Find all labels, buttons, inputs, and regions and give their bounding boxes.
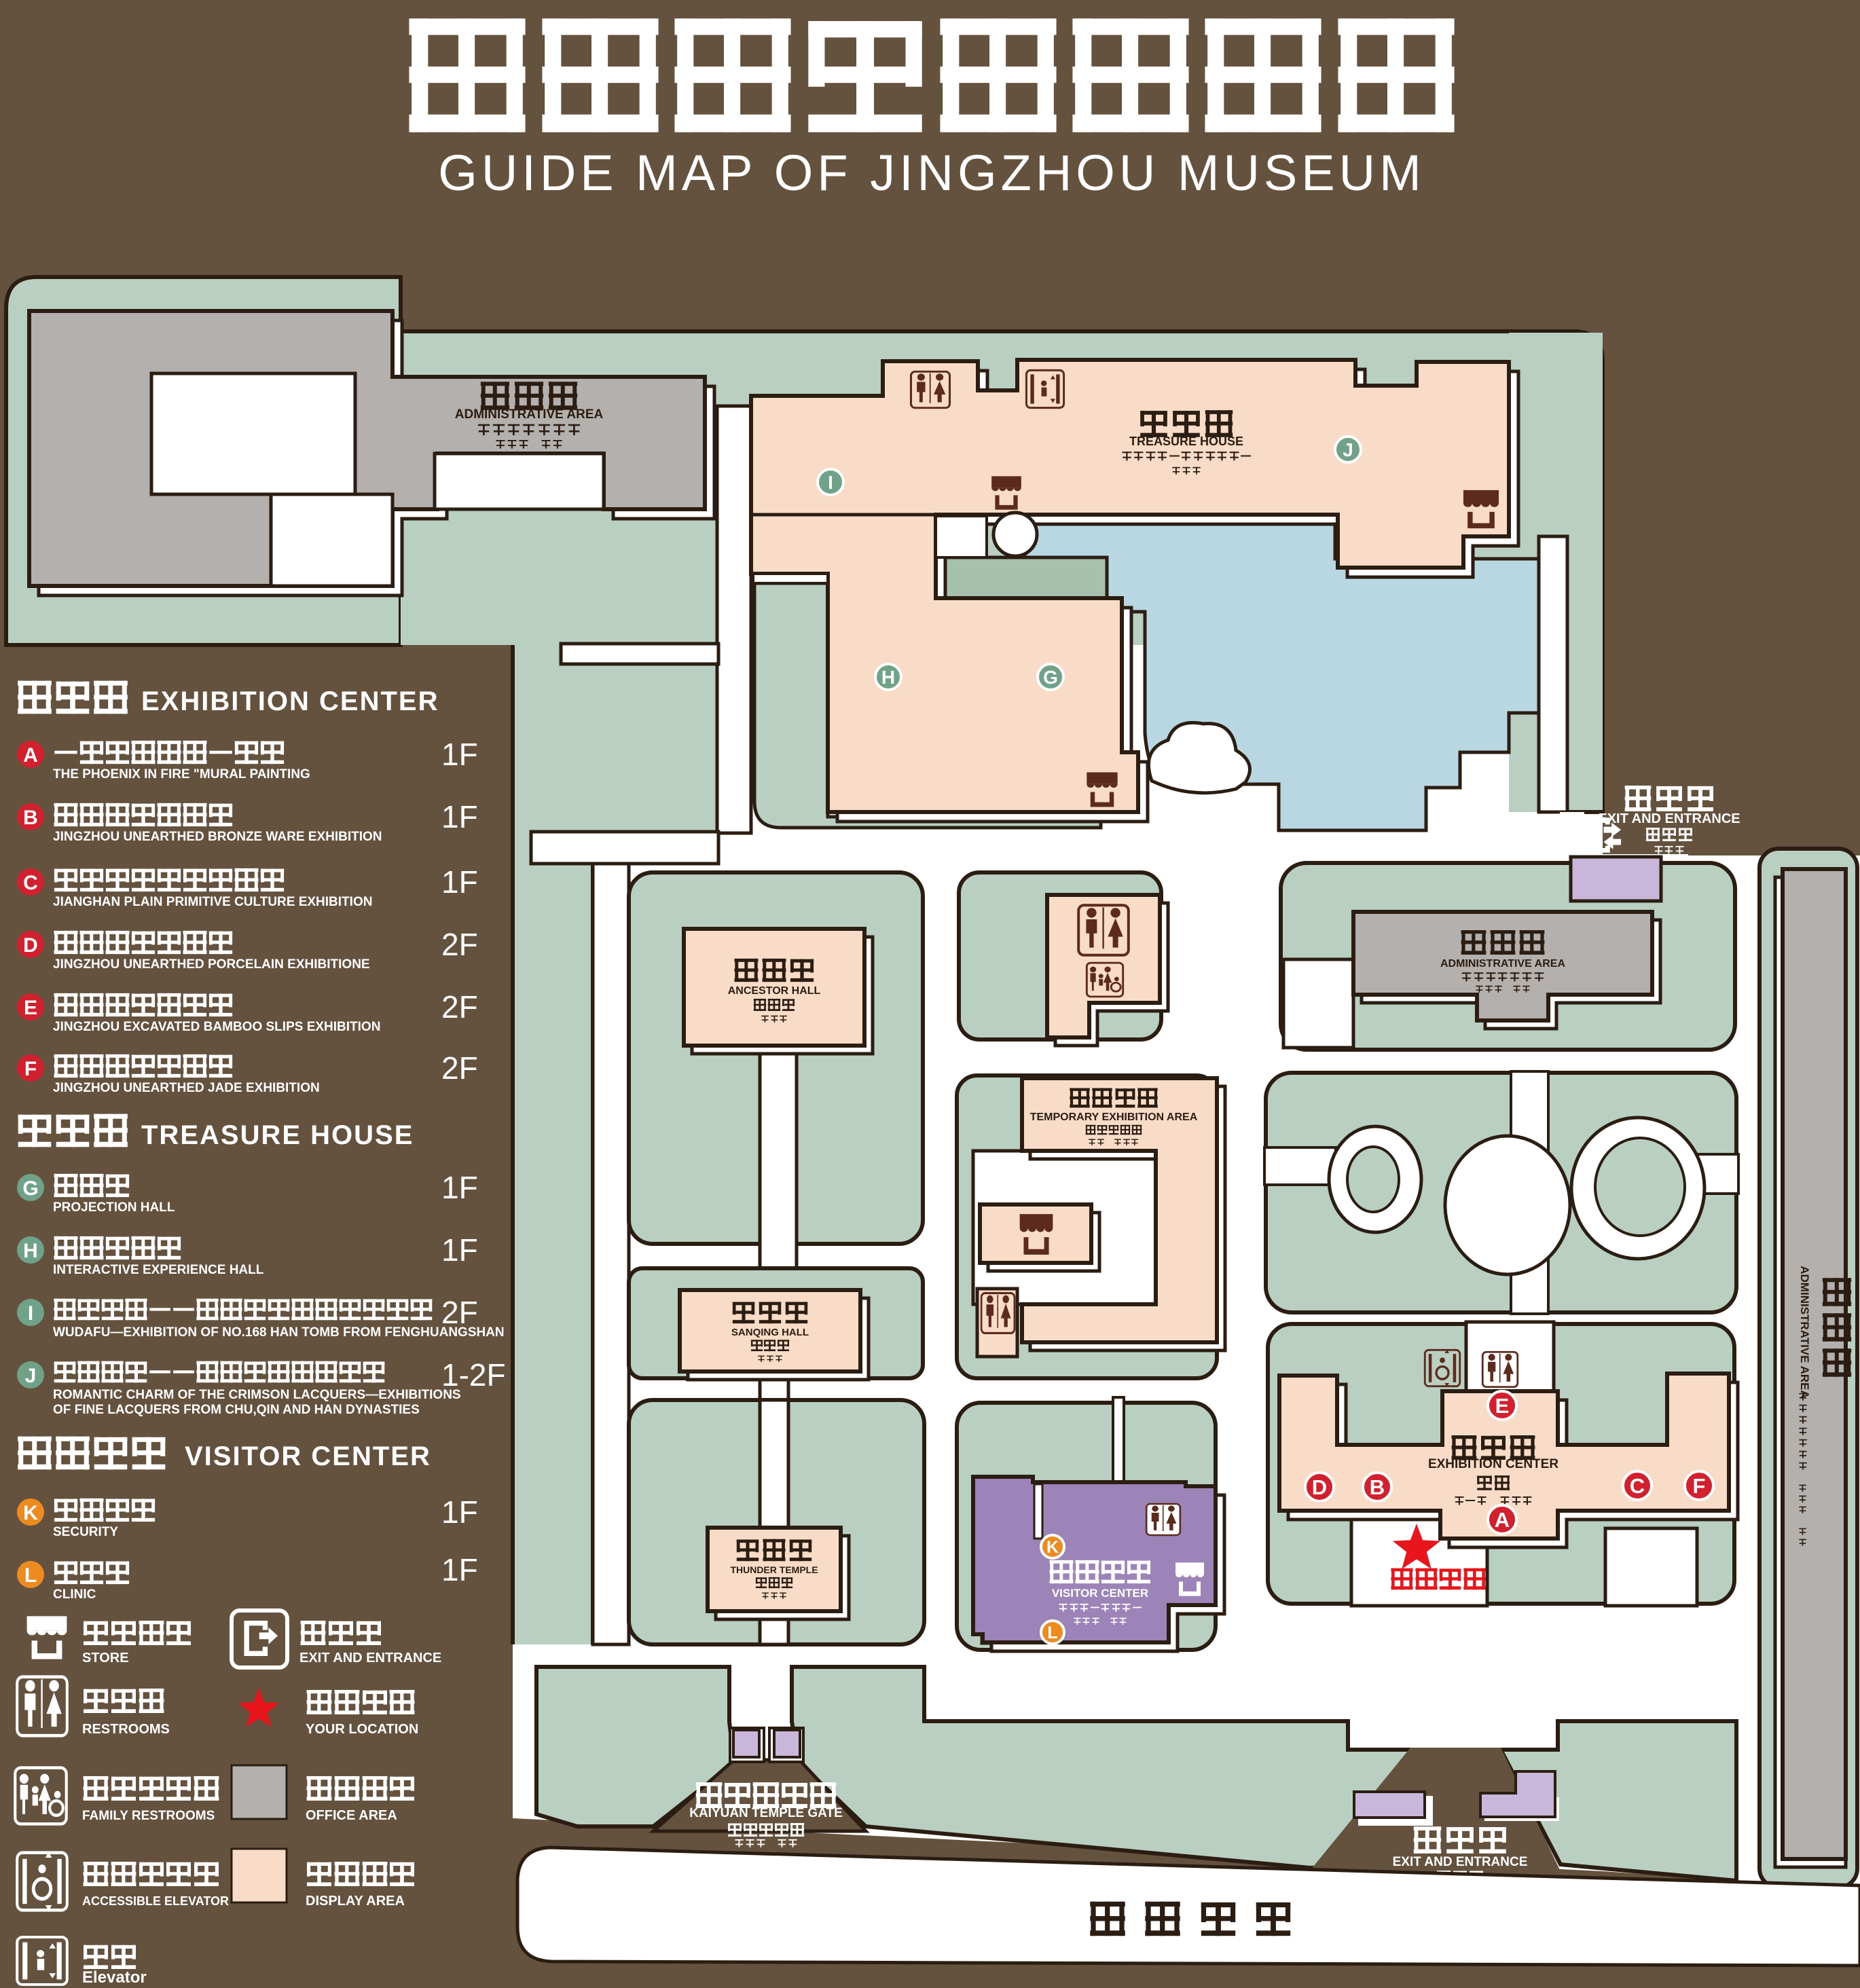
svg-text:1F: 1F [441, 864, 478, 900]
svg-text:EXHIBITION CENTER: EXHIBITION CENTER [1428, 1457, 1558, 1471]
svg-text:H: H [881, 667, 895, 688]
svg-text:PROJECTION HALL: PROJECTION HALL [53, 1200, 175, 1215]
svg-text:G: G [22, 1177, 38, 1200]
svg-text:INTERACTIVE EXPERIENCE HALL: INTERACTIVE EXPERIENCE HALL [53, 1263, 264, 1277]
svg-text:SECURITY: SECURITY [53, 1525, 118, 1539]
svg-text:ROMANTIC CHARM OF THE CRIMSON: ROMANTIC CHARM OF THE CRIMSON LACQUERS—E… [53, 1388, 461, 1402]
svg-text:1F: 1F [441, 1494, 478, 1530]
svg-text:ADMINISTRATIVE AREA: ADMINISTRATIVE AREA [455, 407, 604, 422]
svg-text:THE PHOENIX IN FIRE "MURAL PAI: THE PHOENIX IN FIRE "MURAL PAINTING [53, 767, 310, 781]
svg-text:THUNDER TEMPLE: THUNDER TEMPLE [730, 1564, 818, 1575]
svg-text:EXIT AND ENTRANCE: EXIT AND ENTRANCE [299, 1651, 441, 1665]
svg-text:EXHIBITION CENTER: EXHIBITION CENTER [141, 686, 439, 716]
svg-text:G: G [1043, 667, 1058, 688]
svg-text:ADMINISTRATIVE AREA: ADMINISTRATIVE AREA [1440, 958, 1565, 970]
svg-text:JINGZHOU UNEARTHED PORCELAIN E: JINGZHOU UNEARTHED PORCELAIN EXHIBITIONE [53, 957, 370, 972]
svg-text:Elevator: Elevator [82, 1968, 147, 1987]
svg-text:CLINIC: CLINIC [53, 1587, 96, 1602]
svg-text:VISITOR CENTER: VISITOR CENTER [1052, 1587, 1148, 1600]
svg-text:B: B [23, 807, 38, 829]
svg-text:STORE: STORE [82, 1651, 129, 1665]
svg-text:E: E [24, 997, 37, 1019]
svg-text:ACCESSIBLE ELEVATOR: ACCESSIBLE ELEVATOR [82, 1894, 229, 1908]
svg-text:1F: 1F [441, 1552, 478, 1587]
svg-text:H: H [23, 1240, 38, 1262]
svg-text:JIANGHAN PLAIN PRIMITIVE CULTU: JIANGHAN PLAIN PRIMITIVE CULTURE EXHIBIT… [53, 895, 372, 909]
svg-text:JINGZHOU UNEARTHED JADE EXHIBI: JINGZHOU UNEARTHED JADE EXHIBITION [53, 1081, 320, 1095]
svg-text:ANCESTOR HALL: ANCESTOR HALL [728, 985, 821, 997]
svg-text:2F: 2F [441, 1050, 478, 1086]
svg-text:1-2F: 1-2F [441, 1357, 506, 1393]
svg-text:FAMILY RESTROOMS: FAMILY RESTROOMS [82, 1809, 215, 1823]
svg-text:VISITOR CENTER: VISITOR CENTER [185, 1441, 431, 1471]
svg-text:C: C [23, 872, 38, 894]
svg-text:1F: 1F [441, 1170, 478, 1205]
svg-text:F: F [24, 1058, 37, 1080]
svg-text:YOUR LOCATION: YOUR LOCATION [306, 1722, 418, 1737]
svg-text:KAIYUAN TEMPLE GATE: KAIYUAN TEMPLE GATE [689, 1806, 843, 1820]
svg-text:JINGZHOU UNEARTHED BRONZE WARE: JINGZHOU UNEARTHED BRONZE WARE EXHIBITIO… [53, 830, 382, 844]
svg-text:2F: 2F [441, 989, 478, 1025]
svg-text:OFFICE AREA: OFFICE AREA [306, 1808, 397, 1823]
svg-text:1F: 1F [441, 1232, 478, 1268]
svg-text:C: C [1630, 1474, 1645, 1498]
svg-text:K: K [1046, 1538, 1059, 1557]
svg-text:ADMINISTRATIVE AREA: ADMINISTRATIVE AREA [1798, 1266, 1811, 1399]
svg-text:D: D [23, 934, 38, 957]
svg-text:I: I [28, 1302, 33, 1325]
svg-text:OF FINE LACQUERS FROM CHU,QIN: OF FINE LACQUERS FROM CHU,QIN AND HAN DY… [53, 1403, 420, 1417]
svg-text:WUDAFU—EXHIBITION OF NO.168 HA: WUDAFU—EXHIBITION OF NO.168 HAN TOMB FRO… [53, 1325, 505, 1340]
svg-text:TEMPORARY EXHIBITION AREA: TEMPORARY EXHIBITION AREA [1030, 1111, 1198, 1123]
svg-text:L: L [1047, 1623, 1057, 1642]
svg-text:GUIDE MAP OF JINGZHOU MUSEUM: GUIDE MAP OF JINGZHOU MUSEUM [438, 145, 1425, 201]
svg-text:RESTROOMS: RESTROOMS [82, 1722, 170, 1737]
svg-text:EXIT AND ENTRANCE: EXIT AND ENTRANCE [1598, 811, 1740, 826]
svg-text:D: D [1312, 1475, 1327, 1499]
svg-text:EXIT AND ENTRANCE: EXIT AND ENTRANCE [1393, 1855, 1528, 1869]
svg-text:DISPLAY AREA: DISPLAY AREA [306, 1894, 405, 1909]
svg-text:JINGZHOU EXCAVATED BAMBOO SLIP: JINGZHOU EXCAVATED BAMBOO SLIPS EXHIBITI… [53, 1020, 380, 1034]
svg-text:TREASURE HOUSE: TREASURE HOUSE [141, 1120, 414, 1150]
svg-text:TREASURE HOUSE: TREASURE HOUSE [1129, 435, 1243, 448]
svg-text:E: E [1495, 1394, 1510, 1418]
svg-text:K: K [23, 1502, 38, 1524]
svg-text:J: J [1343, 439, 1353, 460]
svg-text:1F: 1F [441, 799, 478, 834]
svg-text:2F: 2F [441, 927, 478, 962]
svg-text:1F: 1F [441, 737, 478, 772]
svg-text:B: B [1370, 1475, 1385, 1499]
svg-text:F: F [1693, 1474, 1706, 1498]
svg-text:I: I [828, 472, 833, 493]
svg-text:2F: 2F [441, 1295, 478, 1330]
svg-text:J: J [25, 1365, 37, 1387]
svg-text:SANQING HALL: SANQING HALL [731, 1327, 809, 1338]
svg-text:L: L [24, 1564, 37, 1587]
svg-text:A: A [23, 744, 38, 767]
svg-text:A: A [1495, 1508, 1510, 1532]
